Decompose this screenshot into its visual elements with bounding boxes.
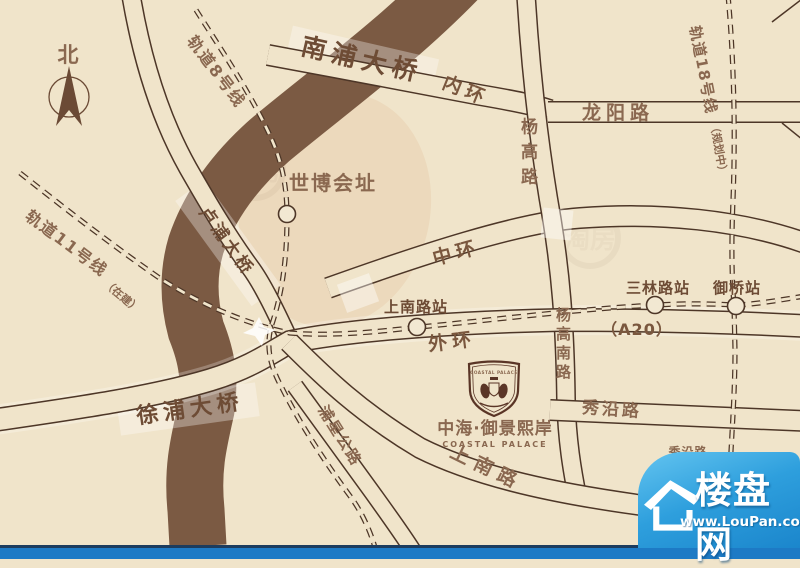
label-yanggao: 杨高路 xyxy=(517,116,538,192)
label-yanggao-south: 杨高南路 xyxy=(554,306,572,383)
loupan-badge[interactable]: 楼盘网 www.LouPan.com xyxy=(638,452,800,548)
project-name-en: COASTAL PALACE xyxy=(442,440,547,449)
station-circle-sanlin xyxy=(647,297,664,314)
logo-crown xyxy=(490,377,498,380)
junction-highlight xyxy=(541,208,574,241)
label-expo-site: 世博会址 xyxy=(289,171,377,195)
label-station-yuqiao: 御桥站 xyxy=(712,279,761,297)
compass-north-label: 北 xyxy=(58,43,79,67)
logo-mini-shield xyxy=(489,383,499,396)
project-name-cn: 中海·御景熙岸 xyxy=(437,418,552,439)
station-circle-yuqiao xyxy=(728,298,745,315)
label-station-shangnan: 上南路站 xyxy=(384,298,448,316)
station-circle-line8 xyxy=(279,206,296,223)
logo-crest-text: COASTAL PALACE xyxy=(470,370,517,375)
loupan-site-url: www.LouPan.com xyxy=(680,514,800,530)
label-a20: （A20） xyxy=(601,320,673,339)
station-circle-shangnan xyxy=(409,319,426,336)
label-longyang: 龙阳路 xyxy=(582,101,654,124)
label-xiuyan: 秀沿路 xyxy=(580,397,642,422)
label-station-sanlin: 三林路站 xyxy=(626,279,690,297)
